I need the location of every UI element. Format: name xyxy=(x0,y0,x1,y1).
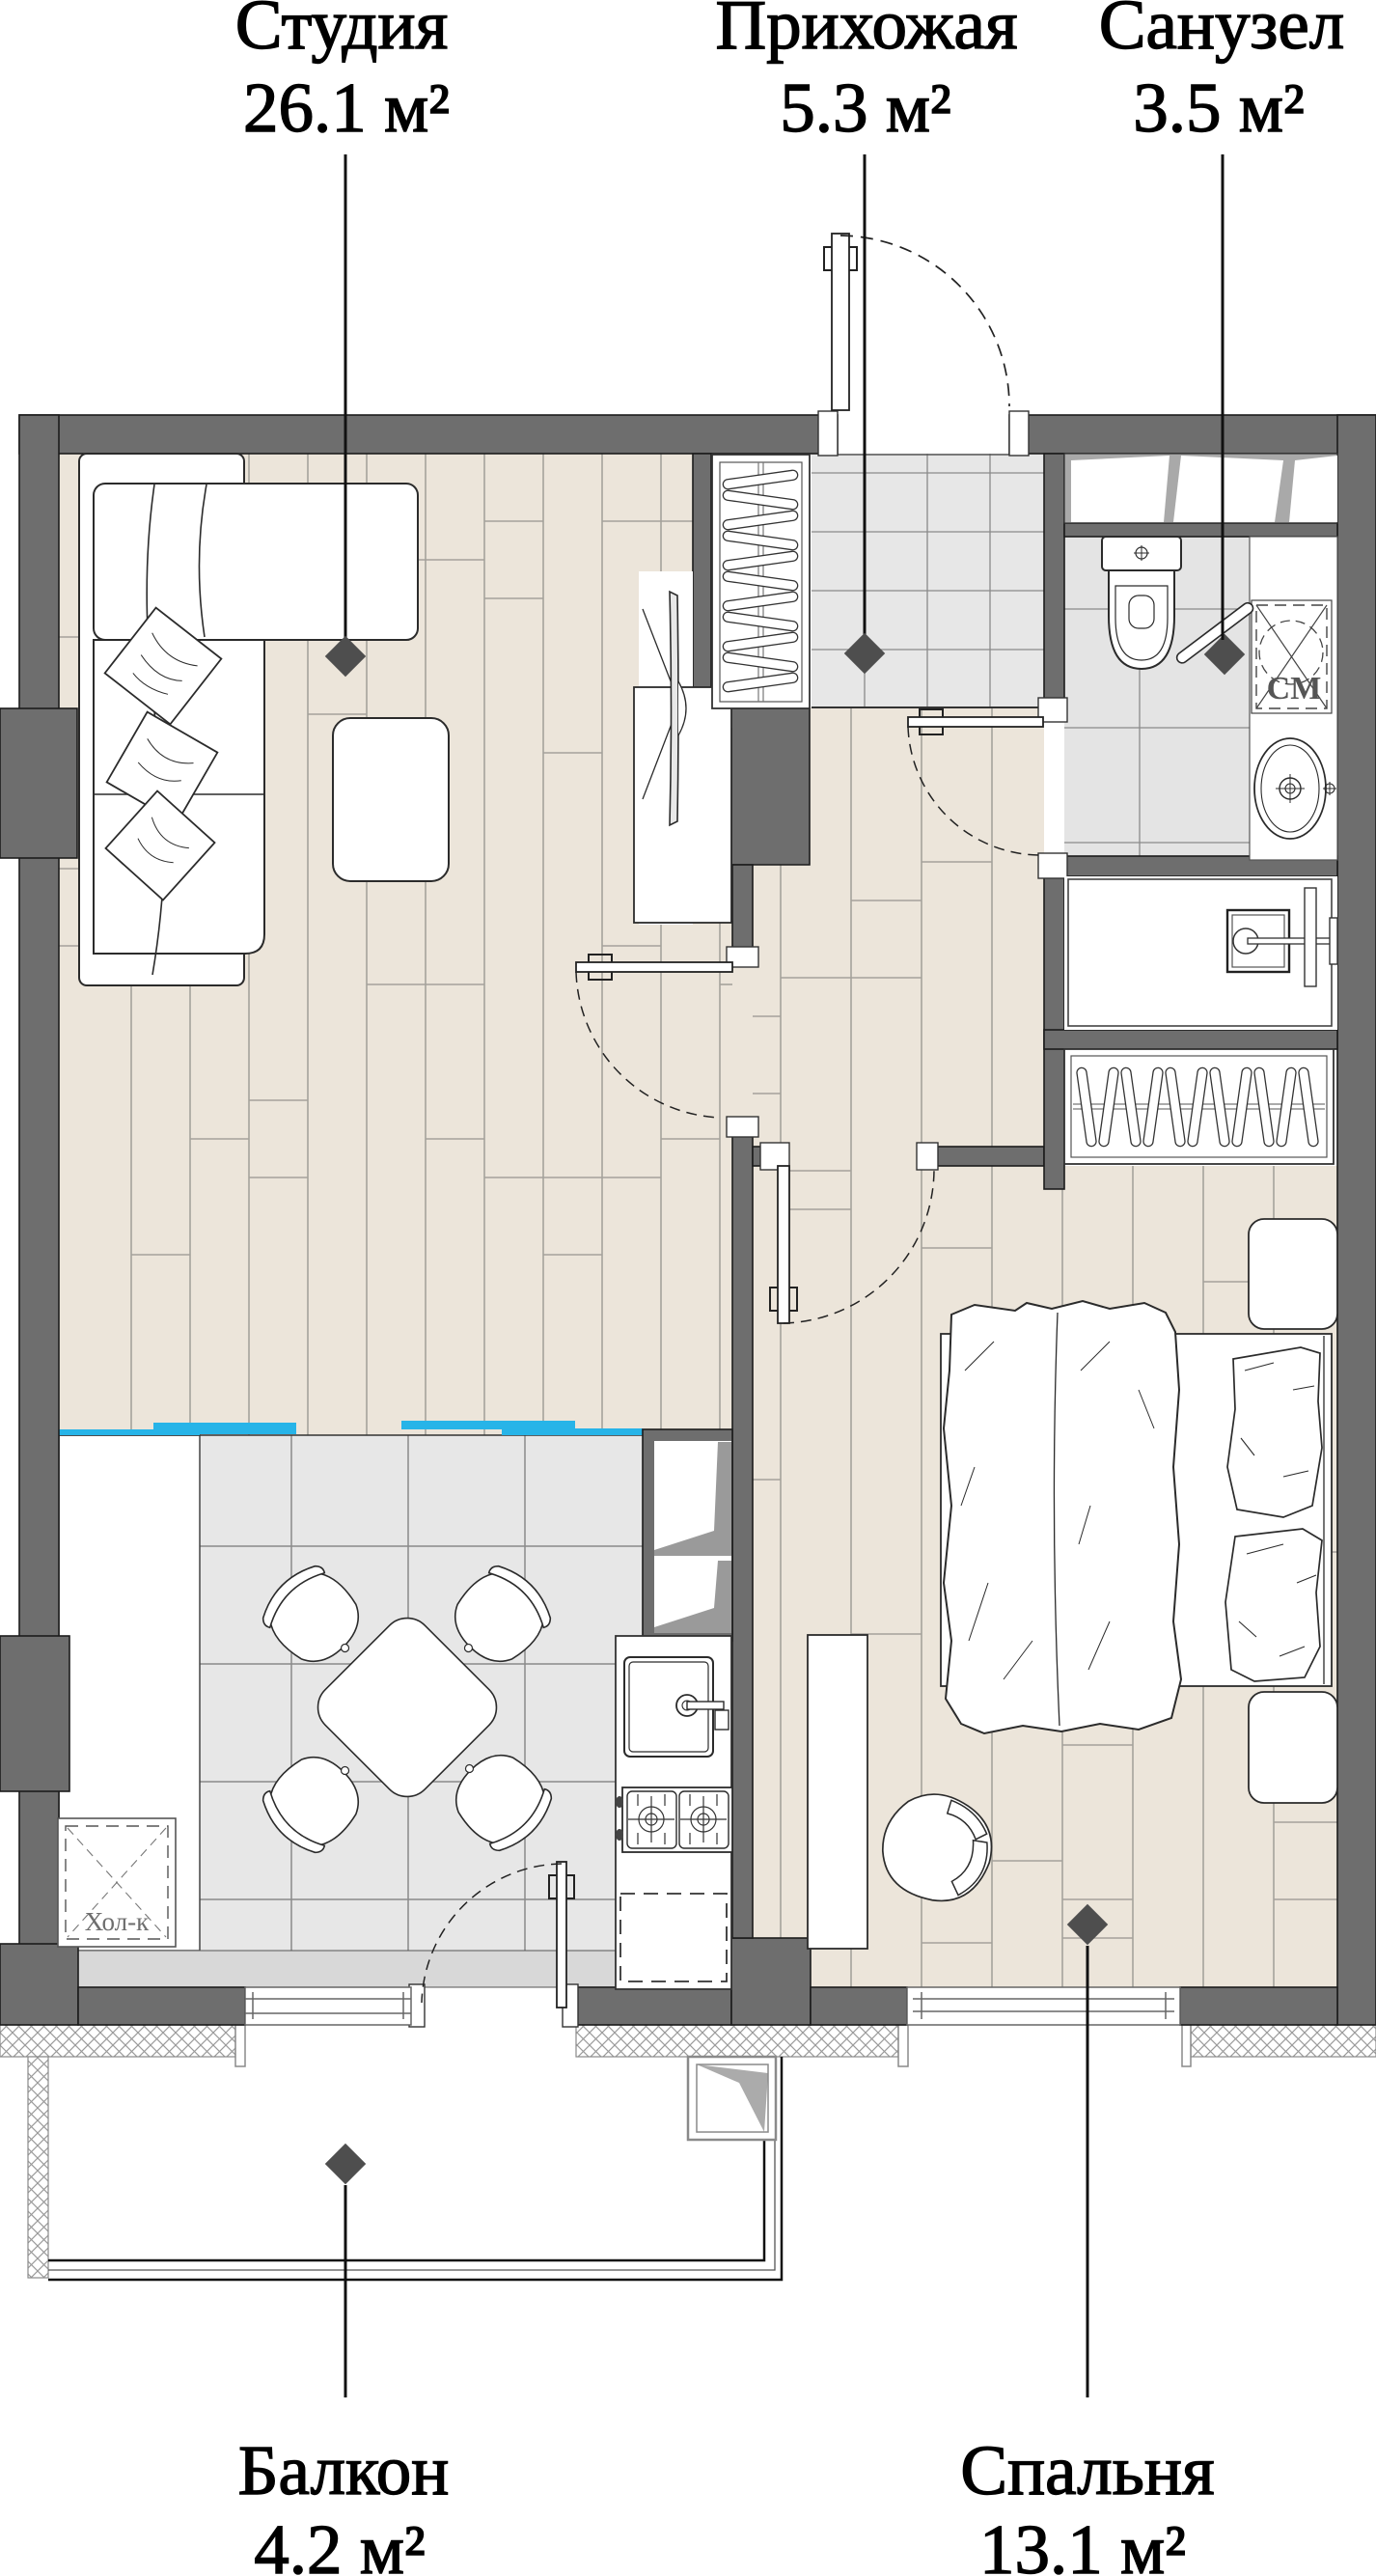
svg-text:Прихожая: Прихожая xyxy=(715,0,1017,64)
svg-text:СМ: СМ xyxy=(1267,671,1322,706)
svg-text:Хол-к: Хол-к xyxy=(85,1907,150,1936)
svg-text:3.5 м²: 3.5 м² xyxy=(1133,69,1305,147)
svg-text:Балкон: Балкон xyxy=(238,2431,450,2509)
svg-text:Санузел: Санузел xyxy=(1099,0,1344,64)
svg-text:26.1 м²: 26.1 м² xyxy=(243,69,450,147)
svg-text:5.3 м²: 5.3 м² xyxy=(780,69,951,147)
svg-text:4.2 м²: 4.2 м² xyxy=(254,2510,426,2576)
svg-text:Спальня: Спальня xyxy=(960,2431,1214,2509)
svg-text:Студия: Студия xyxy=(235,0,448,64)
svg-text:13.1 м²: 13.1 м² xyxy=(979,2510,1186,2576)
